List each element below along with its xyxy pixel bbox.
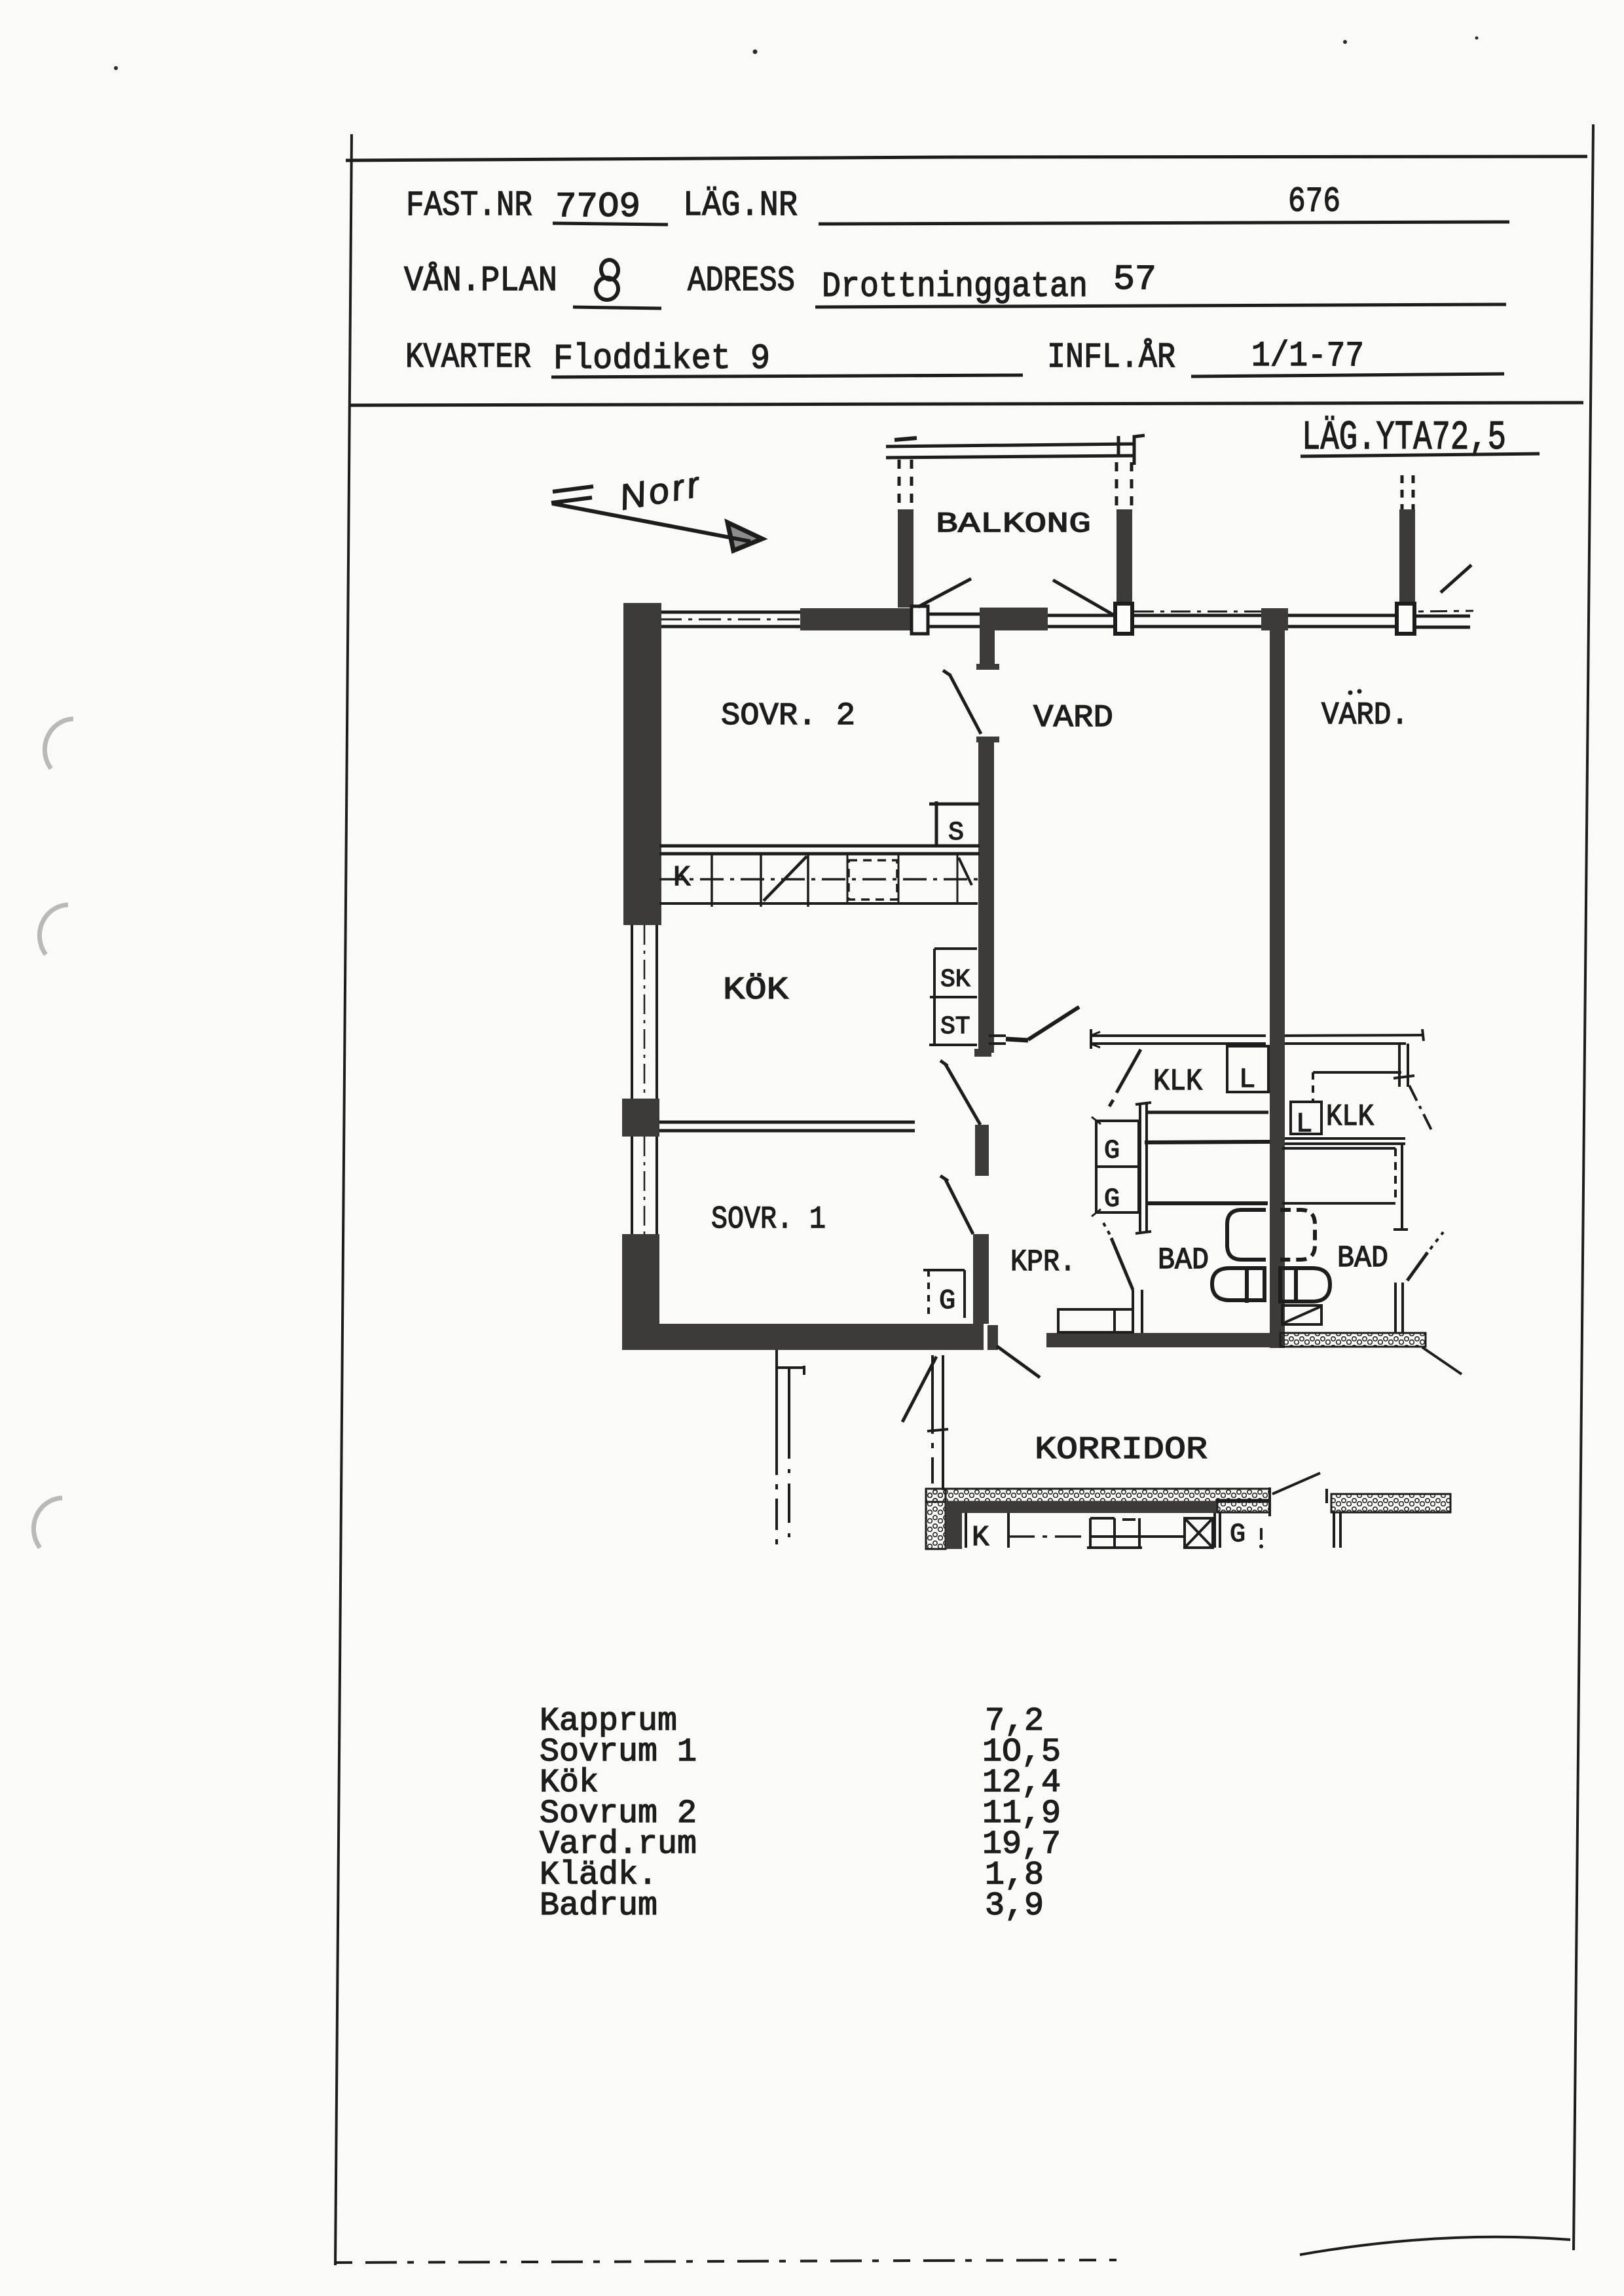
- svg-text:G: G: [1104, 1185, 1120, 1214]
- svg-text:FAST.NR: FAST.NR: [406, 186, 532, 226]
- svg-text:ADRESS: ADRESS: [688, 261, 795, 301]
- svg-text:KVARTER: KVARTER: [405, 338, 531, 378]
- svg-text:K: K: [673, 862, 691, 894]
- svg-text:Badrum: Badrum: [540, 1887, 657, 1925]
- svg-text:77O9: 77O9: [555, 187, 640, 227]
- svg-text:VÅN.PLAN: VÅN.PLAN: [404, 261, 557, 301]
- svg-text:SOVR. 2: SOVR. 2: [721, 699, 855, 734]
- svg-text:KLK: KLK: [1153, 1065, 1202, 1099]
- svg-text:KORRIDOR: KORRIDOR: [1035, 1432, 1208, 1468]
- svg-text:BAD: BAD: [1337, 1241, 1388, 1275]
- svg-text:VARD.: VARD.: [1321, 698, 1409, 733]
- svg-text:VARD: VARD: [1033, 701, 1113, 736]
- svg-text:57: 57: [1113, 260, 1156, 300]
- svg-text:BAD: BAD: [1158, 1243, 1209, 1277]
- svg-text:KPR.: KPR.: [1010, 1245, 1076, 1279]
- svg-text:L: L: [1296, 1108, 1312, 1140]
- svg-text:K: K: [972, 1522, 989, 1554]
- svg-text:S: S: [948, 818, 964, 848]
- svg-text:G: G: [939, 1285, 955, 1317]
- svg-text:676: 676: [1288, 182, 1340, 222]
- svg-text:ST: ST: [940, 1013, 970, 1041]
- svg-text:1/1-77: 1/1-77: [1251, 337, 1364, 376]
- svg-text:3,9: 3,9: [985, 1887, 1044, 1925]
- svg-text:KLK: KLK: [1326, 1100, 1374, 1134]
- svg-text:Drottninggatan: Drottninggatan: [822, 267, 1088, 307]
- svg-text:G: G: [1104, 1137, 1120, 1166]
- svg-text:SOVR. 1: SOVR. 1: [711, 1202, 826, 1237]
- svg-text:G: G: [1230, 1520, 1246, 1550]
- svg-text:BALKONG: BALKONG: [936, 508, 1091, 541]
- svg-text:SK: SK: [940, 966, 970, 994]
- svg-text:KÖK: KÖK: [723, 973, 788, 1008]
- svg-text:Floddiket 9: Floddiket 9: [553, 339, 770, 379]
- svg-text:LÄG.NR: LÄG.NR: [683, 186, 798, 226]
- svg-text:L: L: [1239, 1064, 1255, 1095]
- svg-text:INFL.ÅR: INFL.ÅR: [1047, 338, 1175, 378]
